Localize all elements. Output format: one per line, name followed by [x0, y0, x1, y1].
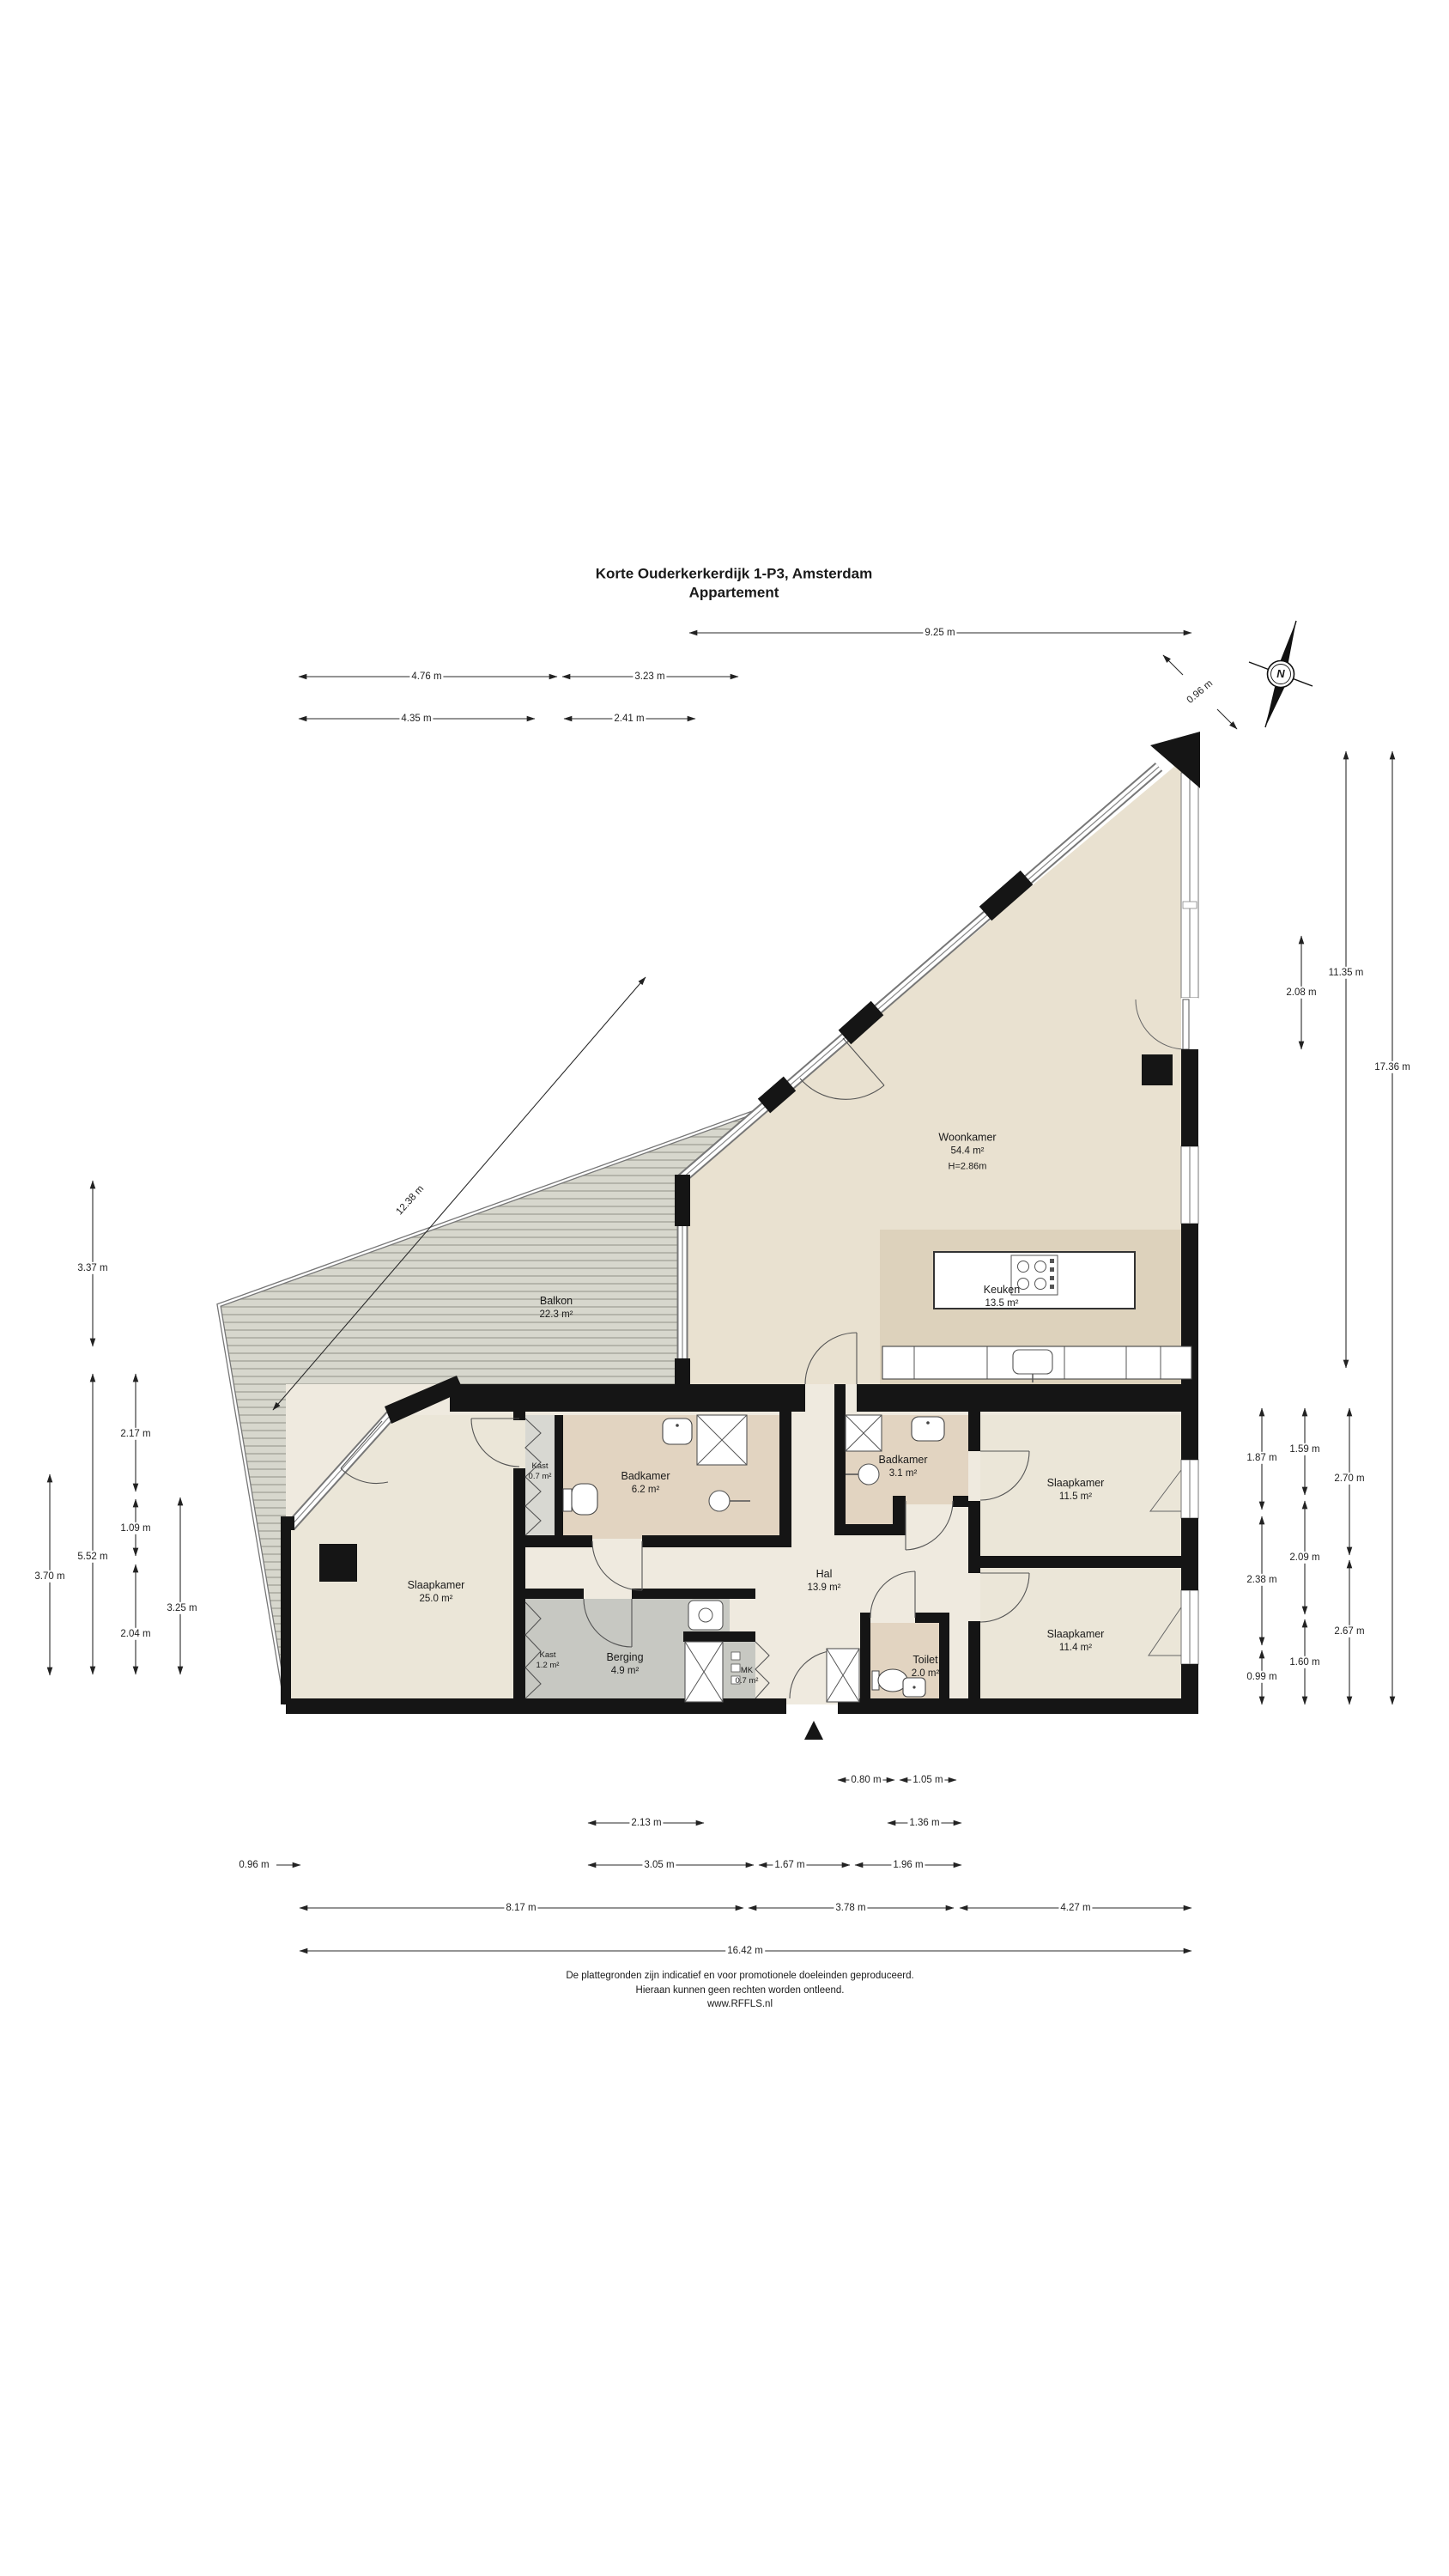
room-name: Hal — [808, 1568, 841, 1582]
dimension-label: 2.17 m — [118, 1428, 152, 1440]
dimension-label: 17.36 m — [1373, 1061, 1412, 1073]
room-area: 2.0 m² — [912, 1668, 940, 1680]
room-label-slaapkamer-2: Slaapkamer 11.5 m² — [1047, 1477, 1105, 1503]
room-name: Kast — [529, 1461, 552, 1472]
washbasin-icon — [663, 1419, 692, 1444]
dimension-label: 11.35 m — [1327, 967, 1366, 979]
room-label-badkamer-2: Badkamer 3.1 m² — [879, 1454, 928, 1479]
floor-plan-svg — [0, 0, 1449, 2576]
dimension-label: 2.04 m — [118, 1628, 152, 1640]
dimension-label: 5.52 m — [76, 1551, 109, 1563]
room-name: Woonkamer — [938, 1132, 996, 1145]
room-label-badkamer-1: Badkamer 6.2 m² — [621, 1470, 670, 1496]
room-name: Toilet — [912, 1654, 940, 1668]
dimension-label: 3.23 m — [633, 671, 666, 683]
dimension-label: 1.59 m — [1288, 1443, 1321, 1455]
room-name: Kast — [537, 1650, 560, 1661]
kast2-floor — [525, 1599, 568, 1698]
kitchen-island — [934, 1252, 1135, 1309]
footer-website: www.RFFLS.nl — [566, 1997, 913, 2012]
room-name: Berging — [606, 1651, 643, 1665]
room-area: 22.3 m² — [540, 1309, 573, 1321]
dimension-label: 1.87 m — [1245, 1452, 1278, 1464]
footer-line-1: De plattegronden zijn indicatief en voor… — [566, 1969, 913, 1984]
dimension-label: 0.80 m — [849, 1774, 882, 1786]
dimension-label: 2.41 m — [612, 713, 646, 725]
dimension-label: 3.78 m — [834, 1902, 867, 1914]
dimension-label: 2.67 m — [1332, 1625, 1366, 1637]
radiator-icon — [858, 1464, 879, 1485]
room-label-kast-2: Kast 1.2 m² — [537, 1650, 560, 1671]
dimension-label: 4.27 m — [1058, 1902, 1092, 1914]
room-label-woonkamer: Woonkamer 54.4 m² H=2.86m — [938, 1132, 996, 1174]
room-area: 54.4 m² — [938, 1145, 996, 1157]
dimension-label: 0.99 m — [1245, 1671, 1278, 1683]
toilet-icon — [563, 1489, 572, 1511]
room-name: MK — [736, 1666, 759, 1676]
room-label-toilet: Toilet 2.0 m² — [912, 1654, 940, 1680]
dimension-label: 4.35 m — [399, 713, 433, 725]
kitchen-counter — [882, 1346, 1191, 1382]
room-label-berging: Berging 4.9 m² — [606, 1651, 643, 1677]
entrance-arrow — [804, 1721, 823, 1740]
radiator-icon — [709, 1491, 730, 1511]
dimension-label: 3.70 m — [33, 1571, 66, 1583]
dimension-label: 0.96 m — [237, 1859, 270, 1871]
room-name: Balkon — [540, 1295, 573, 1309]
room-area: 25.0 m² — [408, 1593, 465, 1605]
room-area: 11.4 m² — [1047, 1642, 1105, 1654]
room-name: Slaapkamer — [1047, 1477, 1105, 1491]
room-label-balkon: Balkon 22.3 m² — [540, 1295, 573, 1321]
room-area: 6.2 m² — [621, 1484, 670, 1496]
kitchen-sink — [1013, 1350, 1052, 1374]
room-label-hal: Hal 13.9 m² — [808, 1568, 841, 1594]
dimension-label: 1.67 m — [773, 1859, 806, 1871]
dimension-label: 2.38 m — [1245, 1574, 1278, 1586]
dimension-label: 1.60 m — [1288, 1656, 1321, 1668]
dimension-label: 3.05 m — [642, 1859, 676, 1871]
dimension-label: 1.05 m — [911, 1774, 944, 1786]
dimension-label: 3.37 m — [76, 1262, 109, 1274]
washbasin-icon — [912, 1417, 944, 1441]
dimension-label: 16.42 m — [725, 1945, 765, 1957]
room-area: 0.7 m² — [736, 1676, 759, 1686]
column — [319, 1544, 357, 1582]
room-name: Badkamer — [879, 1454, 928, 1467]
room-height: H=2.86m — [938, 1162, 996, 1174]
room-area: 11.5 m² — [1047, 1491, 1105, 1503]
dimension-label: 2.13 m — [629, 1817, 663, 1829]
floorplan-page: Korte Ouderkerkerdijk 1-P3, Amsterdam Ap… — [0, 0, 1449, 2576]
room-area: 0.7 m² — [529, 1472, 552, 1482]
plan-subtitle: Appartement — [689, 583, 779, 601]
dimension-label: 9.25 m — [923, 627, 956, 639]
dimension-label: 3.25 m — [165, 1602, 198, 1614]
room-area: 3.1 m² — [879, 1467, 928, 1479]
column — [1142, 1054, 1173, 1085]
right-wall-window-top — [1181, 773, 1198, 998]
dimension-label: 1.96 m — [891, 1859, 925, 1871]
room-label-slaapkamer-1: Slaapkamer 25.0 m² — [408, 1579, 465, 1605]
room-label-kast-1: Kast 0.7 m² — [529, 1461, 552, 1482]
room-label-mk: MK 0.7 m² — [736, 1666, 759, 1686]
right-wall-window-mid — [1181, 1146, 1198, 1224]
dimension-label: 2.70 m — [1332, 1473, 1366, 1485]
dimension-label: 2.09 m — [1288, 1552, 1321, 1564]
dimension-label: 1.36 m — [907, 1817, 941, 1829]
dimension-label: 1.09 m — [118, 1522, 152, 1534]
room-area: 13.9 m² — [808, 1582, 841, 1594]
compass-north-label: N — [1276, 667, 1284, 681]
room-area: 13.5 m² — [984, 1297, 1020, 1309]
room-area: 4.9 m² — [606, 1665, 643, 1677]
room-label-slaapkamer-3: Slaapkamer 11.4 m² — [1047, 1628, 1105, 1654]
plan-title: Korte Ouderkerkerdijk 1-P3, Amsterdam — [596, 564, 873, 582]
washing-machine-icon — [688, 1601, 723, 1630]
dimension-label: 4.76 m — [409, 671, 443, 683]
room-name: Slaapkamer — [1047, 1628, 1105, 1642]
footer-line-2: Hieraan kunnen geen rechten worden ontle… — [566, 1984, 913, 1998]
room-name: Keuken — [984, 1284, 1020, 1297]
room-area: 1.2 m² — [537, 1661, 560, 1671]
room-name: Slaapkamer — [408, 1579, 465, 1593]
dimension-label: 8.17 m — [504, 1902, 537, 1914]
room-label-keuken: Keuken 13.5 m² — [984, 1284, 1020, 1309]
footer-disclaimer: De plattegronden zijn indicatief en voor… — [566, 1969, 913, 2012]
room-name: Badkamer — [621, 1470, 670, 1484]
dimension-label: 2.08 m — [1284, 987, 1318, 999]
